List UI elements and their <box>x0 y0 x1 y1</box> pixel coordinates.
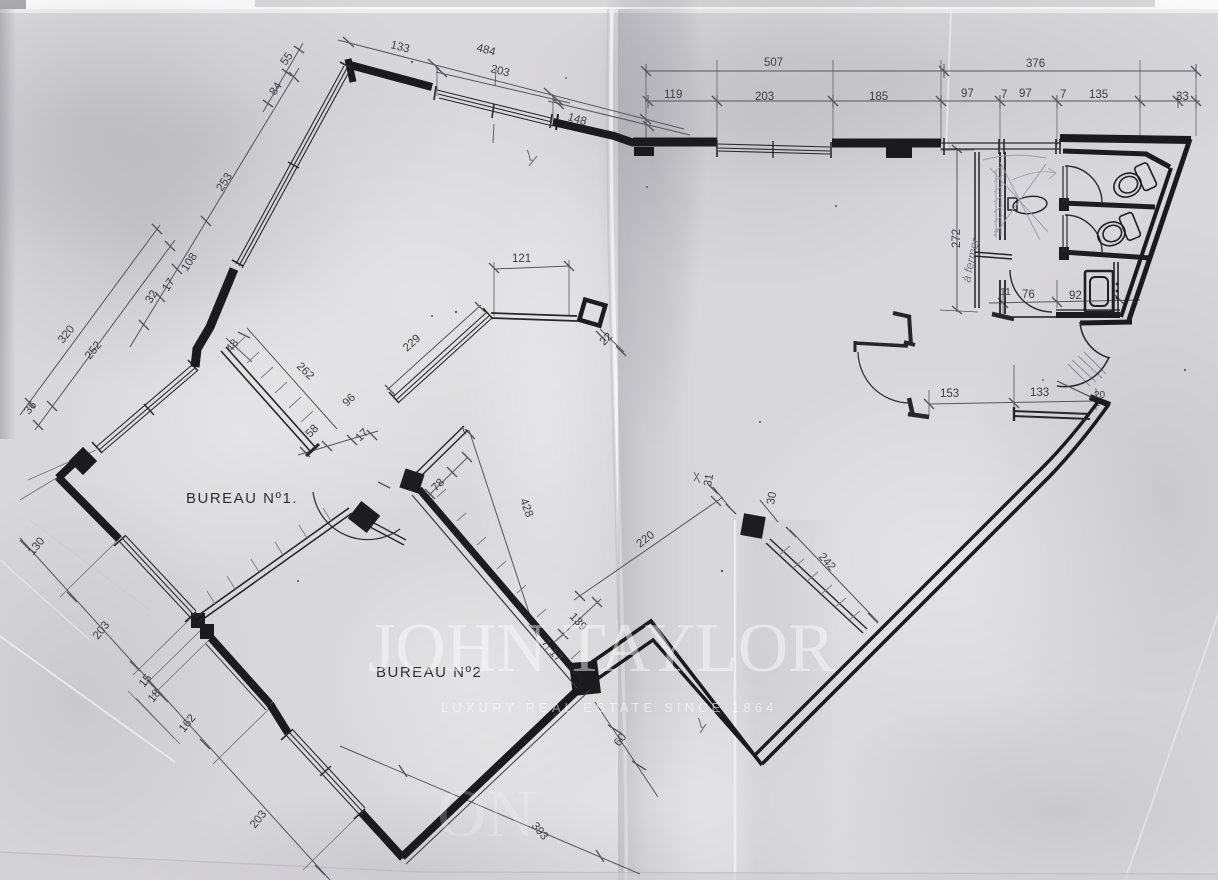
svg-text:121: 121 <box>512 253 531 265</box>
svg-text:507: 507 <box>764 57 783 69</box>
svg-text:119: 119 <box>664 89 682 101</box>
svg-text:97: 97 <box>1019 88 1032 100</box>
svg-text:31: 31 <box>702 473 716 488</box>
svg-text:30: 30 <box>765 491 779 506</box>
svg-text:ON: ON <box>437 775 535 851</box>
svg-text:376: 376 <box>1026 58 1045 70</box>
svg-text:92: 92 <box>1069 290 1082 302</box>
svg-text:20: 20 <box>1094 390 1106 401</box>
svg-text:7: 7 <box>1001 89 1007 101</box>
svg-text:7: 7 <box>1060 89 1066 101</box>
svg-text:185: 185 <box>869 91 888 103</box>
svg-text:272: 272 <box>951 229 963 248</box>
svg-text:203: 203 <box>755 91 774 103</box>
svg-text:135: 135 <box>1089 89 1108 101</box>
svg-text:JOHN TAYLOR: JOHN TAYLOR <box>368 610 835 687</box>
svg-text:BUREAU Nº1.: BUREAU Nº1. <box>186 490 298 507</box>
svg-text:153: 153 <box>940 388 959 400</box>
svg-text:133: 133 <box>1030 387 1049 399</box>
svg-text:LUXURY REAL ESTATE SINCE 1864: LUXURY REAL ESTATE SINCE 1864 <box>441 700 777 715</box>
svg-text:11: 11 <box>1000 286 1011 298</box>
svg-text:97: 97 <box>961 88 974 100</box>
svg-text:76: 76 <box>1022 289 1035 301</box>
svg-text:33: 33 <box>1176 91 1189 103</box>
